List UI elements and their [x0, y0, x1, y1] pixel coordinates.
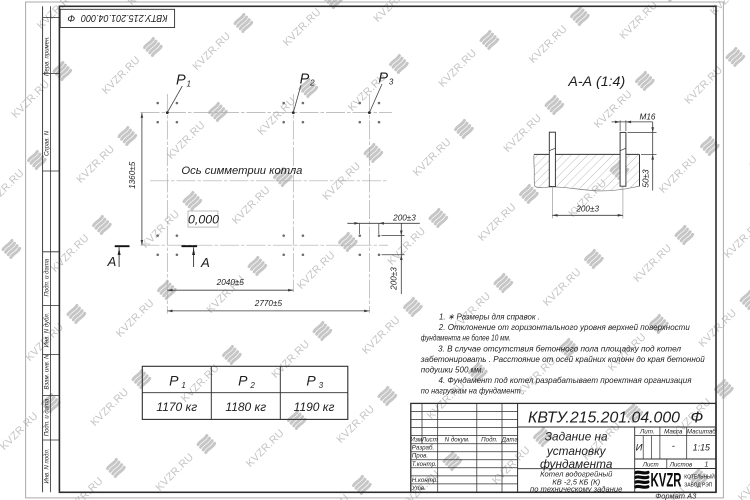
svg-text:KVZR.RU: KVZR.RU — [708, 0, 750, 18]
svg-text:1170 кг: 1170 кг — [156, 400, 197, 414]
svg-text:KVZR.RU: KVZR.RU — [230, 184, 273, 227]
svg-text:3. В случае отсутствия бетонно: 3. В случае отсутствия бетонного пола пл… — [438, 343, 681, 353]
svg-text:KVZR.RU: KVZR.RU — [541, 266, 584, 309]
svg-text:Н.контр.: Н.контр. — [412, 477, 438, 484]
svg-text:KVZR.RU: KVZR.RU — [490, 444, 533, 487]
svg-text:Подп.: Подп. — [481, 436, 497, 443]
svg-text:200±3: 200±3 — [390, 267, 399, 291]
svg-text:Р: Р — [306, 373, 316, 389]
svg-text:3: 3 — [389, 78, 394, 87]
svg-text:KVZR.RU: KVZR.RU — [255, 95, 298, 138]
svg-text:КОТЕЛЬНЫЙ: КОТЕЛЬНЫЙ — [684, 472, 715, 480]
svg-text:Р: Р — [169, 373, 179, 389]
svg-text:KVZR.RU: KVZR.RU — [9, 78, 52, 121]
svg-text:Справ. N: Справ. N — [45, 130, 51, 156]
svg-text:KVZR.RU: KVZR.RU — [462, 0, 505, 1]
svg-text:N докум.: N докум. — [445, 436, 470, 443]
svg-text:2. Отклонение от горизонтально: 2. Отклонение от горизонтального уровня … — [438, 322, 690, 332]
svg-text:Разраб.: Разраб. — [412, 445, 434, 452]
svg-text:KVZR.RU: KVZR.RU — [153, 451, 196, 494]
svg-text:KVZR.RU: KVZR.RU — [371, 0, 414, 25]
svg-text:KVZR.RU: KVZR.RU — [309, 492, 352, 500]
svg-text:KVZR.RU: KVZR.RU — [88, 386, 131, 429]
svg-text:М16: М16 — [640, 113, 656, 122]
svg-text:Масса: Масса — [664, 428, 683, 435]
svg-text:1180 кг: 1180 кг — [225, 400, 266, 414]
svg-text:KVZR.RU: KVZR.RU — [385, 225, 428, 268]
svg-text:Подп. и дата: Подп. и дата — [45, 398, 51, 436]
svg-text:P: P — [176, 73, 186, 89]
svg-text:Взам. инв. N: Взам. инв. N — [45, 354, 51, 390]
svg-text:Т.контр.: Т.контр. — [412, 461, 437, 468]
svg-text:1: 1 — [187, 80, 191, 89]
svg-text:KVZR.RU: KVZR.RU — [63, 475, 106, 500]
svg-text:KVZR.RU: KVZR.RU — [631, 242, 674, 285]
svg-text:Пров.: Пров. — [412, 453, 428, 460]
svg-text:КВТУ.215.201.04.000: КВТУ.215.201.04.000 — [528, 409, 680, 426]
svg-text:Лист: Лист — [642, 461, 659, 468]
svg-text:KVZR.RU: KVZR.RU — [696, 307, 739, 350]
svg-text:2770±5: 2770±5 — [254, 299, 283, 308]
svg-text:KVZR.RU: KVZR.RU — [49, 232, 92, 275]
svg-text:KVZR.RU: KVZR.RU — [139, 208, 182, 251]
svg-text:2: 2 — [249, 381, 255, 390]
svg-text:забетонировать . Расстояние от: забетонировать . Расстояние от осей край… — [420, 354, 705, 364]
svg-text:KVZR.RU: KVZR.RU — [476, 201, 519, 244]
svg-text:Дата: Дата — [501, 436, 519, 443]
svg-text:А: А — [200, 255, 210, 270]
svg-text:KVZR.RU: KVZR.RU — [682, 64, 725, 107]
svg-text:1:15: 1:15 — [693, 442, 710, 452]
svg-text:KVZR: KVZR — [651, 470, 682, 492]
svg-text:2: 2 — [309, 79, 315, 88]
svg-text:Лист: Лист — [421, 436, 438, 443]
svg-text:KVZR.RU: KVZR.RU — [436, 47, 479, 90]
svg-text:Перв. примен.: Перв. примен. — [45, 36, 51, 76]
svg-text:Листов: Листов — [669, 461, 693, 468]
svg-text:1190 кг: 1190 кг — [294, 400, 335, 414]
svg-text:А: А — [107, 254, 117, 269]
svg-text:P: P — [378, 71, 388, 87]
svg-text:KVZR.RU: KVZR.RU — [281, 6, 324, 49]
svg-text:Инв. N дубл.: Инв. N дубл. — [45, 313, 51, 348]
svg-text:KVZR.RU: KVZR.RU — [74, 143, 117, 186]
svg-text:KVZR.RU: KVZR.RU — [501, 112, 544, 155]
svg-text:-: - — [672, 441, 675, 452]
svg-text:KVZR.RU: KVZR.RU — [114, 297, 157, 340]
svg-text:И: И — [636, 442, 643, 453]
svg-text:KVZR.RU: KVZR.RU — [165, 119, 208, 162]
svg-text:KVZR.RU: KVZR.RU — [360, 314, 403, 357]
svg-text:4. Фундамент под котел разраба: 4. Фундамент под котел разрабатывает про… — [439, 375, 693, 385]
svg-text:Подп. и дата: Подп. и дата — [45, 258, 51, 296]
svg-text:Инв. N подл.: Инв. N подл. — [45, 448, 51, 483]
svg-text:KVZR.RU: KVZR.RU — [334, 403, 377, 446]
svg-text:Лит.: Лит. — [639, 428, 655, 435]
svg-text:2040±5: 2040±5 — [216, 278, 245, 287]
svg-text:фундамента не более 10 мм.: фундамента не более 10 мм. — [421, 333, 511, 343]
svg-text:Ось симметрии котла: Ось симметрии котла — [181, 165, 302, 177]
svg-text:KVZR.RU: KVZR.RU — [411, 136, 454, 179]
svg-text:подушки 500 мм.: подушки 500 мм. — [421, 364, 484, 374]
svg-text:Формат А3: Формат А3 — [655, 491, 697, 500]
svg-text:А-А (1:4): А-А (1:4) — [567, 74, 625, 90]
svg-text:200±3: 200±3 — [575, 204, 599, 213]
svg-text:KVZR.RU: KVZR.RU — [0, 410, 41, 453]
svg-text:ЗАВОД РЭП: ЗАВОД РЭП — [684, 482, 712, 488]
svg-text:0,000: 0,000 — [188, 213, 219, 227]
svg-text:200±3: 200±3 — [392, 214, 416, 223]
svg-text:KVZR.RU: KVZR.RU — [722, 218, 750, 261]
svg-text:Утв.: Утв. — [411, 485, 426, 492]
svg-text:1360±5: 1360±5 — [128, 161, 137, 189]
svg-text:KVZR.RU: KVZR.RU — [657, 153, 700, 196]
svg-text:по техническому задание: по техническому задание — [530, 485, 622, 494]
svg-text:установку: установку — [546, 444, 607, 458]
svg-text:по нагрузкам на фундамент .: по нагрузкам на фундамент . — [421, 385, 525, 395]
svg-text:Р: Р — [238, 373, 248, 389]
svg-text:KVZR.RU: KVZR.RU — [592, 88, 635, 131]
svg-text:KVZR.RU: KVZR.RU — [295, 249, 338, 292]
svg-text:KVZR.RU: KVZR.RU — [190, 30, 233, 73]
svg-text:KVZR.RU: KVZR.RU — [320, 160, 363, 203]
svg-text:1: 1 — [181, 381, 185, 390]
svg-text:KVZR.RU: KVZR.RU — [736, 461, 750, 500]
svg-text:KVZR.RU: KVZR.RU — [0, 167, 27, 210]
svg-text:P: P — [300, 72, 310, 88]
svg-text:Ф: Ф — [67, 12, 75, 23]
svg-text:KVZR.RU: KVZR.RU — [100, 54, 143, 97]
svg-text:KVZR.RU: KVZR.RU — [244, 427, 287, 470]
svg-text:Задание на: Задание на — [545, 429, 608, 443]
svg-text:КВТУ.215.201.04.000: КВТУ.215.201.04.000 — [81, 12, 168, 23]
svg-text:KVZR.RU: KVZR.RU — [0, 256, 1, 299]
svg-text:KVZR.RU: KVZR.RU — [527, 23, 570, 66]
svg-text:Масштаб: Масштаб — [687, 428, 716, 435]
svg-text:1. ∗ Размеры для справок .: 1. ∗ Размеры для справок . — [439, 312, 540, 322]
svg-text:50±3: 50±3 — [641, 169, 650, 188]
svg-text:Ф: Ф — [691, 409, 704, 426]
svg-text:3: 3 — [319, 381, 324, 390]
svg-text:1: 1 — [705, 461, 709, 468]
